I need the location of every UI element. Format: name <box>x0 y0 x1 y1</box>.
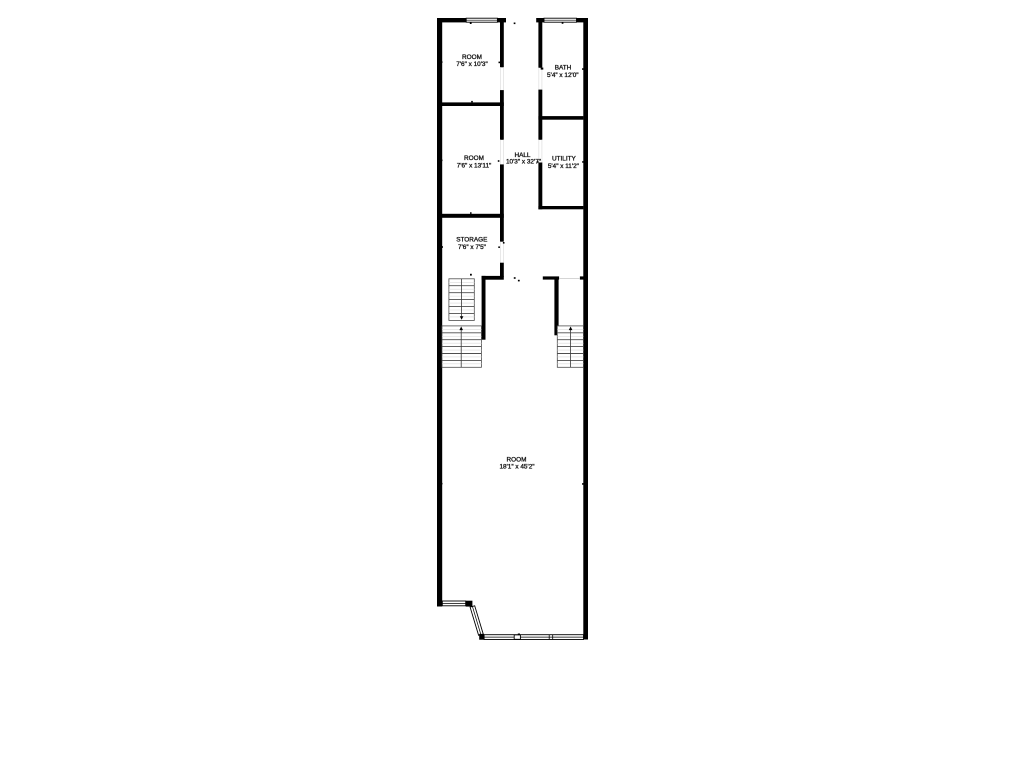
svg-text:STORAGE: STORAGE <box>456 237 487 244</box>
svg-text:BATH: BATH <box>555 64 572 71</box>
svg-text:7'6" x 7'5": 7'6" x 7'5" <box>458 244 486 251</box>
svg-text:10'3" x 32'7": 10'3" x 32'7" <box>506 158 541 165</box>
svg-text:18'1" x 45'2": 18'1" x 45'2" <box>499 463 534 470</box>
svg-text:UTILITY: UTILITY <box>552 156 577 163</box>
svg-text:5'4" x 12'0": 5'4" x 12'0" <box>547 72 579 79</box>
svg-text:ROOM: ROOM <box>464 155 484 162</box>
svg-text:7'6" x 13'11": 7'6" x 13'11" <box>457 163 492 170</box>
svg-text:5'4" x 11'2": 5'4" x 11'2" <box>548 163 579 170</box>
svg-text:ROOM: ROOM <box>507 456 527 463</box>
svg-text:7'6" x 10'3": 7'6" x 10'3" <box>456 61 488 68</box>
svg-text:ROOM: ROOM <box>462 54 482 61</box>
